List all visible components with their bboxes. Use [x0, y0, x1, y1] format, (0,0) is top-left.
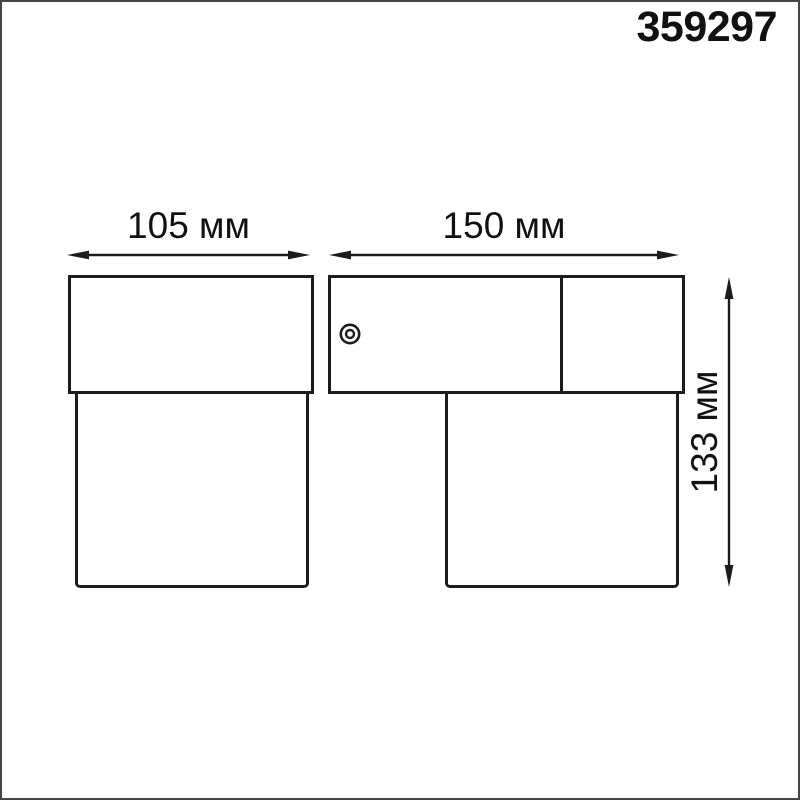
dimension-height-label: 133 мм — [685, 276, 725, 588]
product-code: 359297 — [637, 6, 778, 49]
front-view-mounting-plate — [68, 275, 314, 394]
dimension-depth-label: 150 мм — [328, 206, 680, 246]
technical-drawing-canvas: 359297 105 мм 150 мм 133 мм — [0, 0, 800, 800]
dimension-width-arrow — [66, 248, 311, 262]
side-view-panel-divider — [560, 275, 563, 394]
screw-icon — [337, 321, 363, 347]
dimension-depth-arrow — [328, 248, 680, 262]
dimension-width-label: 105 мм — [66, 206, 311, 246]
dimension-height-arrow — [722, 276, 736, 588]
side-view-body — [445, 394, 679, 588]
front-view-body — [75, 394, 309, 588]
side-view-top-section — [328, 275, 685, 394]
